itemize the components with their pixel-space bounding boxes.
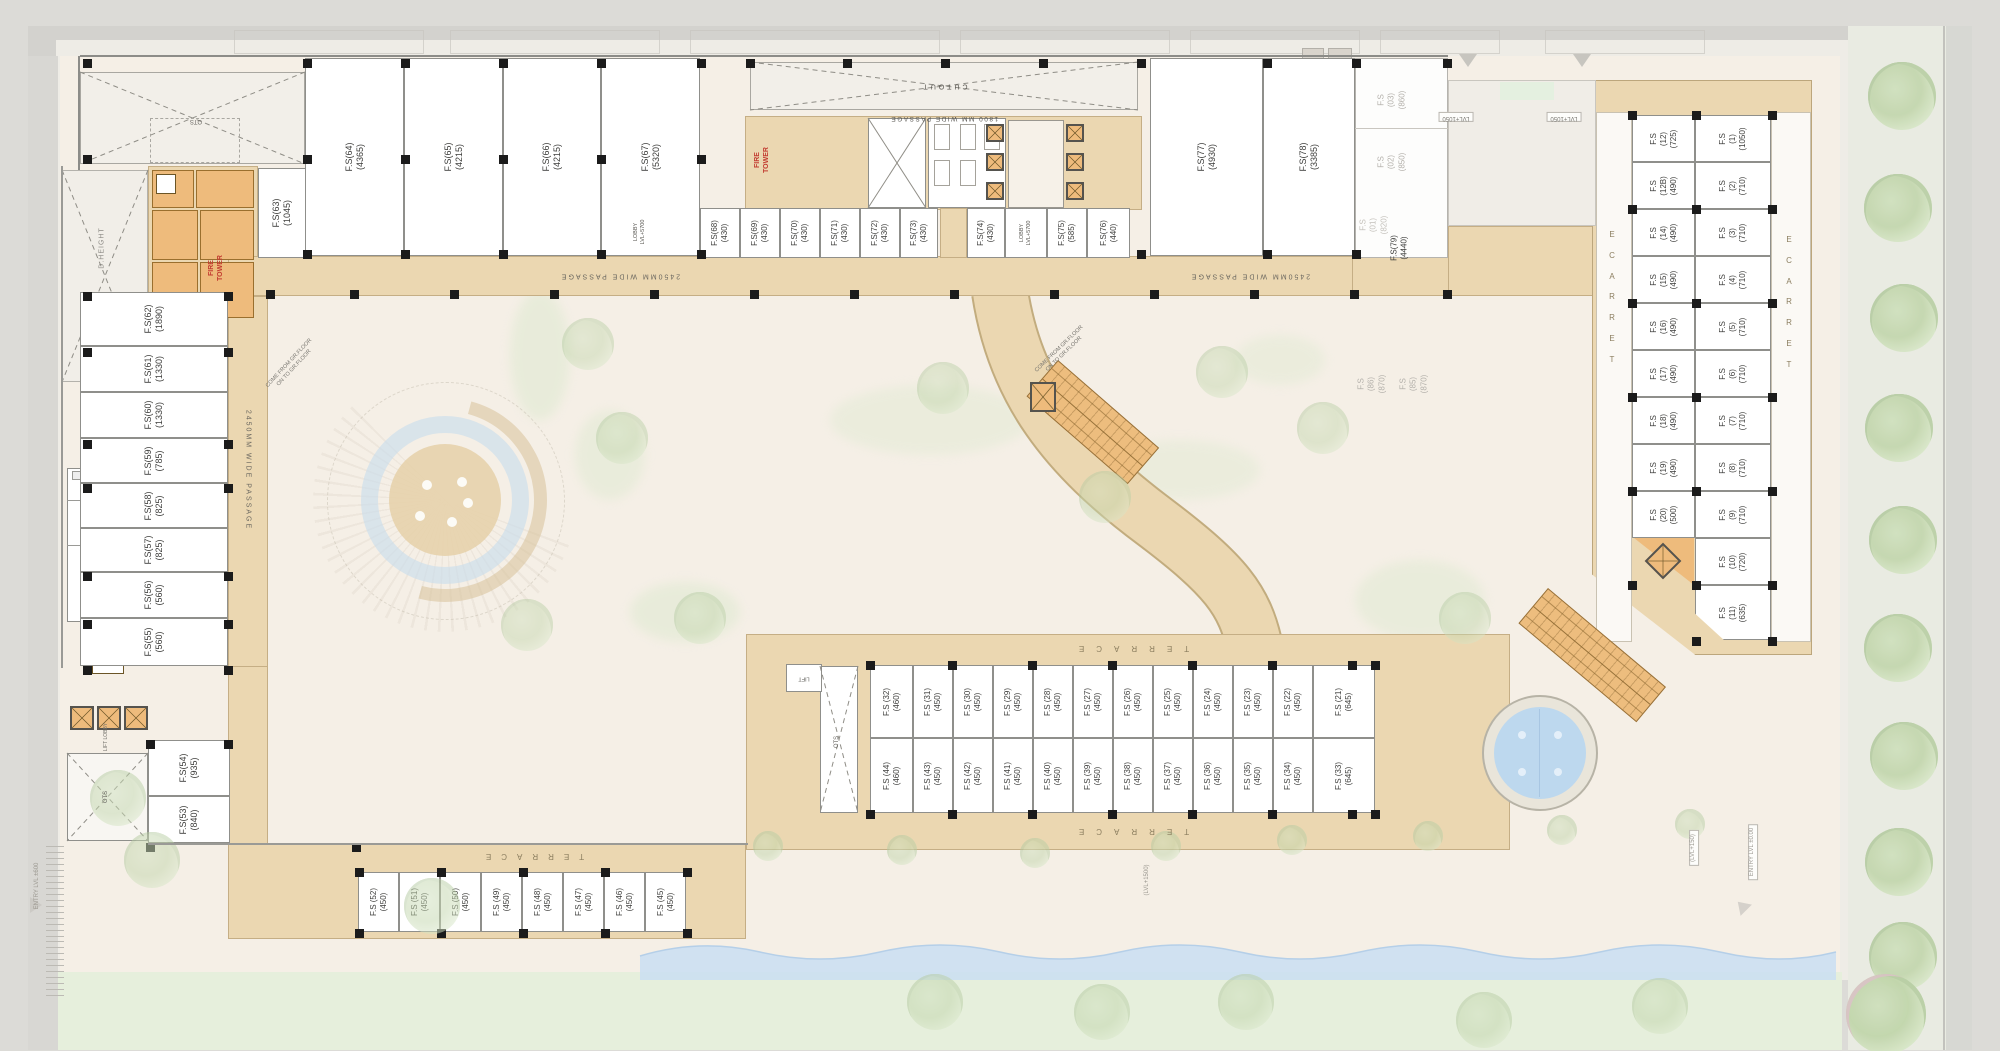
ghost-shop-label: F.S (03) (860)	[1376, 91, 1407, 110]
wc-stall	[960, 124, 976, 150]
column-marker	[224, 484, 233, 493]
tree	[562, 318, 614, 370]
shop-label: F.S (20) (500)	[1649, 505, 1679, 524]
shop-cell: F.S(67) (5320)	[601, 58, 700, 256]
shop-label: F.S (27) (450)	[1083, 687, 1103, 715]
level-label: LVL+1050	[1546, 112, 1581, 122]
tree	[1413, 821, 1443, 851]
shop-cell: F.S (35) (450)	[1233, 738, 1273, 813]
column-marker	[224, 348, 233, 357]
column-marker	[866, 810, 875, 819]
ghost-outline	[450, 30, 660, 54]
ghost-shop-label: F.S (02) (850)	[1376, 153, 1407, 172]
shop-cell: F.S (29) (450)	[993, 665, 1033, 738]
column-marker	[1263, 250, 1272, 259]
wc-stall	[934, 124, 950, 150]
level-label: LVL+1050	[1438, 112, 1473, 122]
shop-label: F.S(70) (430)	[790, 220, 810, 246]
passage-label: 2450MM WIDE PASSAGE	[243, 410, 252, 530]
shop-label: F.S (45) (450)	[656, 888, 676, 916]
passage-label: 2450MM WIDE PASSAGE	[560, 271, 680, 280]
shop-label: F.S (38) (450)	[1123, 761, 1143, 789]
arrow-down-icon	[1459, 54, 1477, 67]
column-marker	[1692, 299, 1701, 308]
column-marker	[303, 155, 312, 164]
stage-dot	[415, 511, 425, 521]
cutout-inner	[150, 118, 240, 163]
building-edge	[61, 166, 63, 668]
shop-cell: F.S (36) (450)	[1193, 738, 1233, 813]
shop-cell: F.S(65) (4215)	[404, 58, 503, 256]
green-planter	[1500, 82, 1554, 100]
shop-cell: F.S (3) (710)	[1695, 209, 1771, 256]
shop-cell: F.S (18) (490)	[1632, 397, 1695, 444]
column-marker	[697, 250, 706, 259]
shop-cell: F.S (9) (710)	[1695, 491, 1771, 538]
column-marker	[550, 290, 559, 299]
amphitheatre-stage	[389, 444, 501, 556]
shop-label: F.S (34) (450)	[1283, 761, 1303, 789]
ghost-outline	[960, 30, 1170, 54]
cross-marker	[868, 118, 926, 208]
column-marker	[519, 929, 528, 938]
column-marker	[350, 290, 359, 299]
tree	[753, 831, 783, 861]
lobby-label: LOBBY LVL+5700	[1019, 221, 1033, 246]
column-marker	[499, 250, 508, 259]
shop-cell: F.S(61) (1330)	[80, 346, 228, 392]
column-marker	[355, 868, 364, 877]
building-edge	[148, 843, 748, 845]
column-marker	[224, 292, 233, 301]
pool-dot	[1554, 768, 1562, 776]
tree	[1456, 992, 1512, 1048]
shop-label: F.S (16) (490)	[1649, 317, 1679, 336]
shop-label: F.S (29) (450)	[1003, 687, 1023, 715]
ots-label: OTS	[190, 116, 202, 124]
tree	[124, 832, 180, 888]
shop-label: F.S (36) (450)	[1203, 761, 1223, 789]
shop-cell: F.S (12B) (490)	[1632, 162, 1695, 209]
column-marker	[1628, 111, 1637, 120]
column-marker	[83, 59, 92, 68]
shop-cell: F.S (48) (450)	[522, 872, 563, 932]
lift-shaft	[70, 706, 94, 730]
shop-label: F.S (26) (450)	[1123, 687, 1143, 715]
shop-label: F.S (6) (710)	[1718, 364, 1748, 383]
column-marker	[1268, 810, 1277, 819]
shop-cell: F.S(58) (825)	[80, 483, 228, 528]
shop-label: F.S(75) (585)	[1057, 220, 1077, 246]
shop-cell: F.S (10) (720)	[1695, 538, 1771, 585]
column-marker	[1768, 581, 1777, 590]
shop-label: F.S(56) (560)	[143, 580, 166, 609]
shop-label: F.S (48) (450)	[533, 888, 553, 916]
shop-cell: F.S (25) (450)	[1153, 665, 1193, 738]
shop-cell: F.S(74) (430)	[967, 208, 1005, 258]
tree	[501, 599, 553, 651]
shop-cell: F.S (43) (450)	[913, 738, 953, 813]
tree	[1865, 828, 1933, 896]
shop-label: F.S(60) (1330)	[143, 400, 166, 429]
shop-label: F.S(62) (1890)	[143, 304, 166, 333]
shop-cell: F.S (8) (710)	[1695, 444, 1771, 491]
wc-stall	[960, 160, 976, 186]
tree	[1864, 614, 1932, 682]
shop-cell: F.S (20) (500)	[1632, 491, 1695, 538]
shop-cell: F.S (46) (450)	[604, 872, 645, 932]
shop-label: F.S (46) (450)	[615, 888, 635, 916]
lift-shaft	[1066, 182, 1084, 200]
shop-cell: F.S(66) (4215)	[503, 58, 601, 256]
shop-label: F.S (15) (490)	[1649, 270, 1679, 289]
shop-cell: F.S (17) (490)	[1632, 350, 1695, 397]
shop-label: F.S (17) (490)	[1649, 364, 1679, 383]
column-marker	[1768, 637, 1777, 646]
shop-cell: F.S(71) (430)	[820, 208, 860, 258]
service-room	[196, 170, 254, 208]
pool-dot	[1518, 768, 1526, 776]
tree	[1869, 506, 1937, 574]
shop-cell: F.S (32) (460)	[870, 665, 913, 738]
shop-cell: F.S (15) (490)	[1632, 256, 1695, 303]
column-marker	[650, 290, 659, 299]
column-marker	[303, 59, 312, 68]
column-marker	[1692, 111, 1701, 120]
shop-cell: F.S (47) (450)	[563, 872, 604, 932]
column-marker	[597, 250, 606, 259]
column-marker	[1188, 810, 1197, 819]
shop-label: F.S(59) (785)	[143, 446, 166, 475]
lift-shaft	[986, 153, 1004, 171]
column-marker	[224, 440, 233, 449]
shop-label: F.S (52) (450)	[369, 888, 389, 916]
column-marker	[1348, 810, 1357, 819]
shop-label: F.S (2) (710)	[1718, 176, 1748, 195]
shop-cell: F.S (33) (645)	[1313, 738, 1375, 813]
shop-cell: F.S(64) (4365)	[305, 58, 404, 256]
ghost-outline	[234, 30, 424, 54]
column-marker	[683, 868, 692, 877]
column-marker	[1108, 810, 1117, 819]
column-marker	[499, 59, 508, 68]
terrace-label: TERRACE	[476, 851, 584, 861]
shop-label: F.S(69) (430)	[750, 220, 770, 246]
shop-label: F.S (21) (645)	[1334, 687, 1354, 715]
lift-shaft	[1066, 124, 1084, 142]
shop-label: F.S(54) (935)	[178, 753, 201, 782]
building-edge	[78, 56, 80, 170]
shop-cell: F.S(69) (430)	[740, 208, 780, 258]
column-marker	[519, 868, 528, 877]
ghost-shop-label: F.S (01) (820)	[1358, 216, 1389, 235]
ghost-divider	[1355, 128, 1448, 129]
lift-shaft-small	[156, 174, 176, 194]
shop-cell: F.S(62) (1890)	[80, 292, 228, 346]
shop-label: F.S(77) (4930)	[1195, 142, 1218, 171]
lift-lobby-central	[1008, 120, 1064, 208]
shop-cell: F.S (28) (450)	[1033, 665, 1073, 738]
entry-level-label: ENTRY LVL ±0.00	[1748, 824, 1758, 880]
lift-shaft	[986, 182, 1004, 200]
column-marker	[355, 929, 364, 938]
passage-label: 1800 MM WIDE PASSAGE	[890, 114, 998, 122]
stage-dot	[463, 498, 473, 508]
shop-label: F.S (22) (450)	[1283, 687, 1303, 715]
column-marker	[941, 59, 950, 68]
shop-label: F.S (18) (490)	[1649, 411, 1679, 430]
shop-cell: F.S(57) (825)	[80, 528, 228, 572]
column-marker	[224, 572, 233, 581]
column-marker	[1137, 59, 1146, 68]
shop-label: F.S (43) (450)	[923, 761, 943, 789]
shop-cell: F.S (23) (450)	[1233, 665, 1273, 738]
shop-cell: F.S(78) (3385)	[1263, 58, 1355, 256]
shop-label: F.S(74) (430)	[976, 220, 996, 246]
shop-cell: F.S (2) (710)	[1695, 162, 1771, 209]
column-marker	[1768, 111, 1777, 120]
column-marker	[1352, 250, 1361, 259]
shop-cell: F.S (40) (450)	[1033, 738, 1073, 813]
pool-dot	[1554, 731, 1562, 739]
shop-label: F.S(55) (560)	[143, 627, 166, 656]
shop-label: F.S (40) (450)	[1043, 761, 1063, 789]
shop-cell: F.S (21) (645)	[1313, 665, 1375, 738]
shop-cell: F.S (27) (450)	[1073, 665, 1113, 738]
lift-label: LIFT	[798, 674, 809, 681]
shop-cell: F.S (7) (710)	[1695, 397, 1771, 444]
ghost-outline	[690, 30, 940, 54]
column-marker	[1628, 299, 1637, 308]
shop-cell: F.S (44) (460)	[870, 738, 913, 813]
shop-label: F.S (12) (725)	[1649, 129, 1679, 148]
ots-label: OTS	[103, 791, 111, 803]
shop-label: F.S (12B) (490)	[1649, 176, 1679, 196]
terrace-strip-left	[1596, 112, 1632, 642]
fire-tower-label: FIRE TOWER	[753, 147, 771, 173]
shop-label: F.S (41) (450)	[1003, 761, 1023, 789]
shop-label: F.S(66) (4215)	[541, 142, 564, 171]
shop-label: F.S (31) (450)	[923, 687, 943, 715]
lift-shaft	[124, 706, 148, 730]
column-marker	[1628, 205, 1637, 214]
column-marker	[1768, 299, 1777, 308]
shop-label: F.S (25) (450)	[1163, 687, 1183, 715]
shop-label: F.S (30) (450)	[963, 687, 983, 715]
tree	[1297, 402, 1349, 454]
double-height-label: D.HEIGHT	[97, 227, 106, 268]
shop-cell: F.S (45) (450)	[645, 872, 686, 932]
shop-label: F.S(68) (430)	[710, 220, 730, 246]
shop-cell: F.S (38) (450)	[1113, 738, 1153, 813]
shop-label: F.S(65) (4215)	[442, 142, 465, 171]
column-marker	[1628, 393, 1637, 402]
ghost-outline	[1380, 30, 1500, 54]
pool-dot	[1518, 731, 1526, 739]
tree	[1870, 722, 1938, 790]
shop-label: F.S (44) (460)	[882, 761, 902, 789]
column-marker	[1137, 250, 1146, 259]
service-room	[200, 210, 254, 260]
shop-label: F.S (42) (450)	[963, 761, 983, 789]
column-marker	[1050, 290, 1059, 299]
tree	[674, 592, 726, 644]
shop-cell: F.S(59) (785)	[80, 438, 228, 483]
stair-landing-box	[1448, 80, 1596, 226]
shop-cell: F.S(60) (1330)	[80, 392, 228, 438]
lift-lobby-label: LIFT LOBBY	[103, 723, 110, 751]
grass-patch	[1235, 335, 1325, 385]
column-marker	[1768, 393, 1777, 402]
column-marker	[1039, 59, 1048, 68]
column-marker	[697, 155, 706, 164]
column-marker	[597, 155, 606, 164]
shop-label: F.S(71) (430)	[830, 220, 850, 246]
column-marker	[1371, 661, 1380, 670]
tree	[1439, 592, 1491, 644]
stage-dot	[422, 480, 432, 490]
shop-label: F.S (10) (720)	[1718, 552, 1748, 571]
shop-label: F.S(53) (840)	[178, 805, 201, 834]
column-marker	[224, 666, 233, 675]
shop-cell: F.S (37) (450)	[1153, 738, 1193, 813]
column-marker	[948, 661, 957, 670]
column-marker	[1263, 59, 1272, 68]
column-marker	[1268, 661, 1277, 670]
shop-label: F.S (39) (450)	[1083, 761, 1103, 789]
column-marker	[843, 59, 852, 68]
column-marker	[1188, 661, 1197, 670]
column-marker	[450, 290, 459, 299]
terrace-label: TERRACE	[1067, 643, 1189, 653]
service-room	[152, 210, 198, 260]
tree	[1868, 62, 1936, 130]
shop-cell: F.S (52) (450)	[358, 872, 399, 932]
shop-cell: F.S (24) (450)	[1193, 665, 1233, 738]
shop-label: F.S (49) (450)	[492, 888, 512, 916]
column-marker	[697, 59, 706, 68]
column-marker	[1348, 661, 1357, 670]
walk-gap	[940, 208, 967, 258]
shop-label: F.S(67) (5320)	[639, 142, 662, 171]
lift-shaft	[986, 124, 1004, 142]
shop-cell: F.S(63) (1045)	[258, 168, 306, 258]
shop-label: F.S (8) (710)	[1718, 458, 1748, 477]
column-marker	[83, 484, 92, 493]
column-marker	[1443, 290, 1452, 299]
column-marker	[401, 250, 410, 259]
shop-label: F.S(61) (1330)	[143, 354, 166, 383]
tree	[1196, 346, 1248, 398]
tree	[1870, 284, 1938, 352]
corridor-left-lower	[228, 666, 268, 845]
shop-cell: F.S (26) (450)	[1113, 665, 1153, 738]
shop-label: F.S(64) (4365)	[343, 142, 366, 171]
shop-cell: F.S (6) (710)	[1695, 350, 1771, 397]
entry-hatch	[46, 940, 64, 996]
column-marker	[1350, 290, 1359, 299]
column-marker	[1692, 205, 1701, 214]
entry-level-label: ENTRY LVL ±600	[34, 863, 42, 910]
tree	[1079, 471, 1131, 523]
column-marker	[146, 740, 155, 749]
shop-label: F.S (5) (710)	[1718, 317, 1748, 336]
shop-label: F.S(73) (430)	[909, 220, 929, 246]
level-label: (LVL+150)	[1689, 830, 1699, 866]
column-marker	[1108, 661, 1117, 670]
building-edge	[80, 55, 1448, 57]
shop-label: F.S(63) (1045)	[271, 198, 294, 227]
arrow-down-icon	[1573, 54, 1591, 67]
tree	[1277, 825, 1307, 855]
tree	[1074, 984, 1130, 1040]
shop-cell: F.S (12) (725)	[1632, 115, 1695, 162]
column-marker	[1692, 637, 1701, 646]
column-marker	[683, 929, 692, 938]
shop-label: F.S(58) (825)	[143, 491, 166, 520]
column-marker	[224, 740, 233, 749]
passage-label: 2450MM WIDE PASSAGE	[1190, 271, 1310, 280]
shop-cell: F.S(73) (430)	[900, 208, 938, 258]
column-marker	[746, 59, 755, 68]
stage-dot	[457, 477, 467, 487]
column-marker	[224, 620, 233, 629]
column-marker	[601, 868, 610, 877]
tree	[1547, 815, 1577, 845]
column-marker	[437, 868, 446, 877]
shop-cell: F.S (41) (450)	[993, 738, 1033, 813]
fire-tower-label: FIRE TOWER	[207, 255, 225, 281]
column-marker	[83, 440, 92, 449]
column-marker	[850, 290, 859, 299]
tree	[1846, 974, 1926, 1051]
terrace-label: TERRACE	[1067, 826, 1189, 836]
ghost-shop-label: F.S (86) (870)	[1356, 375, 1387, 394]
lift-box-plaza	[1030, 382, 1056, 412]
shop-cell: F.S (31) (450)	[913, 665, 953, 738]
column-marker	[1250, 290, 1259, 299]
tree	[90, 770, 146, 826]
tree	[596, 412, 648, 464]
terrace-label-vertical: E C A R R E T	[1606, 225, 1618, 371]
pool-water	[1494, 707, 1586, 799]
column-marker	[948, 810, 957, 819]
floor-plan: F.S(64) (4365)F.S(65) (4215)F.S(66) (421…	[0, 0, 2000, 1051]
column-marker	[1352, 59, 1361, 68]
column-marker	[303, 250, 312, 259]
shop-label: F.S (11) (635)	[1718, 603, 1748, 622]
column-marker	[1371, 810, 1380, 819]
level-label: (LVL+1500)	[1144, 864, 1152, 895]
shop-cell: F.S (14) (490)	[1632, 209, 1695, 256]
column-marker	[83, 620, 92, 629]
column-marker	[750, 290, 759, 299]
column-marker	[401, 155, 410, 164]
shop-cell: F.S(76) (440)	[1087, 208, 1130, 258]
tree	[907, 974, 963, 1030]
tree	[887, 835, 917, 865]
column-marker	[950, 290, 959, 299]
column-marker	[601, 929, 610, 938]
shop-label: F.S (37) (450)	[1163, 761, 1183, 789]
terrace-label-vertical: E C A R R E T	[1783, 230, 1795, 376]
shop-label: F.S(57) (825)	[143, 535, 166, 564]
ots-label: OTS	[834, 736, 842, 748]
tree	[1865, 394, 1933, 462]
column-marker	[1768, 487, 1777, 496]
column-marker	[83, 666, 92, 675]
lobby-label: LOBBY LVL+5700	[633, 220, 647, 245]
